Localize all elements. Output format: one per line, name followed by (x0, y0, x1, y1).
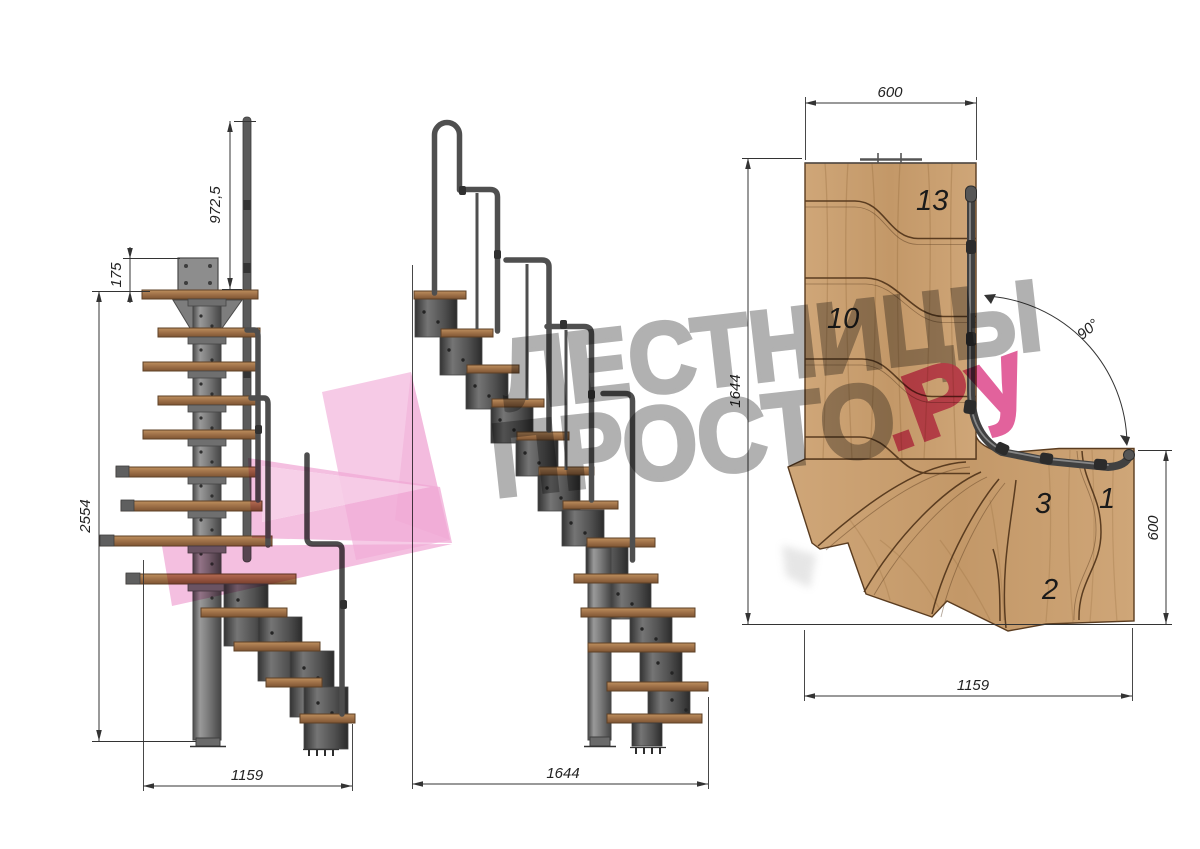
svg-text:3: 3 (1035, 488, 1051, 520)
svg-text:600: 600 (1145, 515, 1162, 541)
svg-text:2: 2 (1041, 574, 1058, 606)
svg-text:1644: 1644 (546, 765, 579, 782)
svg-text:13: 13 (916, 185, 948, 217)
svg-text:972,5: 972,5 (207, 186, 224, 224)
svg-text:175: 175 (108, 262, 125, 288)
svg-text:1: 1 (1099, 483, 1115, 515)
svg-text:600: 600 (877, 84, 903, 101)
svg-text:1159: 1159 (231, 767, 264, 784)
svg-text:2554: 2554 (77, 499, 94, 533)
svg-text:1159: 1159 (957, 677, 990, 694)
